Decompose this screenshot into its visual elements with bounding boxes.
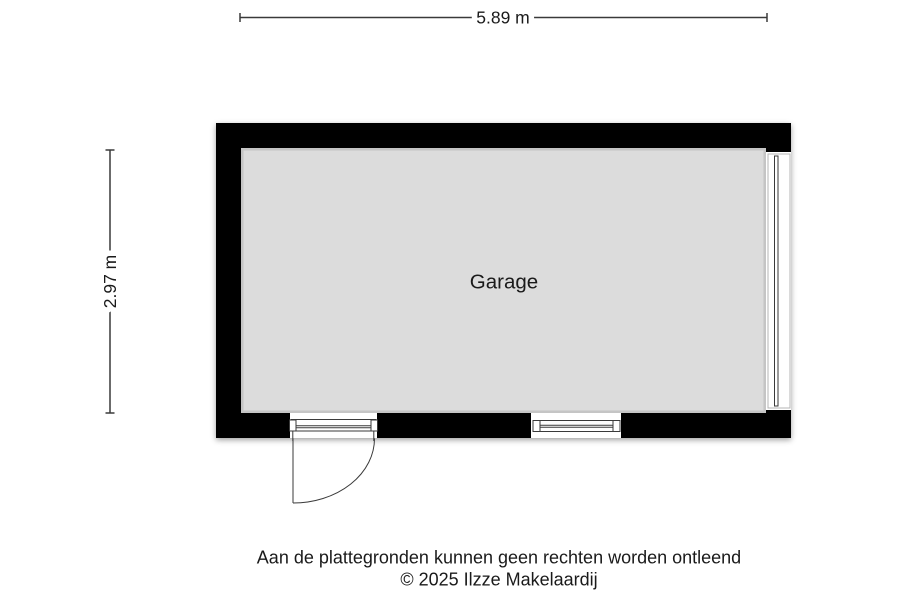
door-swing-arc (293, 439, 375, 504)
window-bottom-frame (533, 421, 620, 432)
door-jamb-right (371, 420, 378, 431)
window-right (768, 154, 790, 408)
footer-disclaimer: Aan de plattegronden kunnen geen rechten… (257, 548, 741, 568)
window-right-frame (768, 154, 790, 408)
window-right-glass (775, 156, 779, 406)
window-bottom (533, 421, 620, 432)
door-frame (291, 420, 376, 432)
room-label: Garage (470, 271, 538, 294)
door-jamb-left (290, 420, 297, 431)
height-dimension-label: 2.97 m (100, 255, 120, 309)
footer-copyright: © 2025 Ilzze Makelaardij (400, 570, 597, 590)
floorplan-image: 5.89 m 2.97 m (0, 0, 900, 600)
width-dimension-label: 5.89 m (476, 8, 530, 28)
